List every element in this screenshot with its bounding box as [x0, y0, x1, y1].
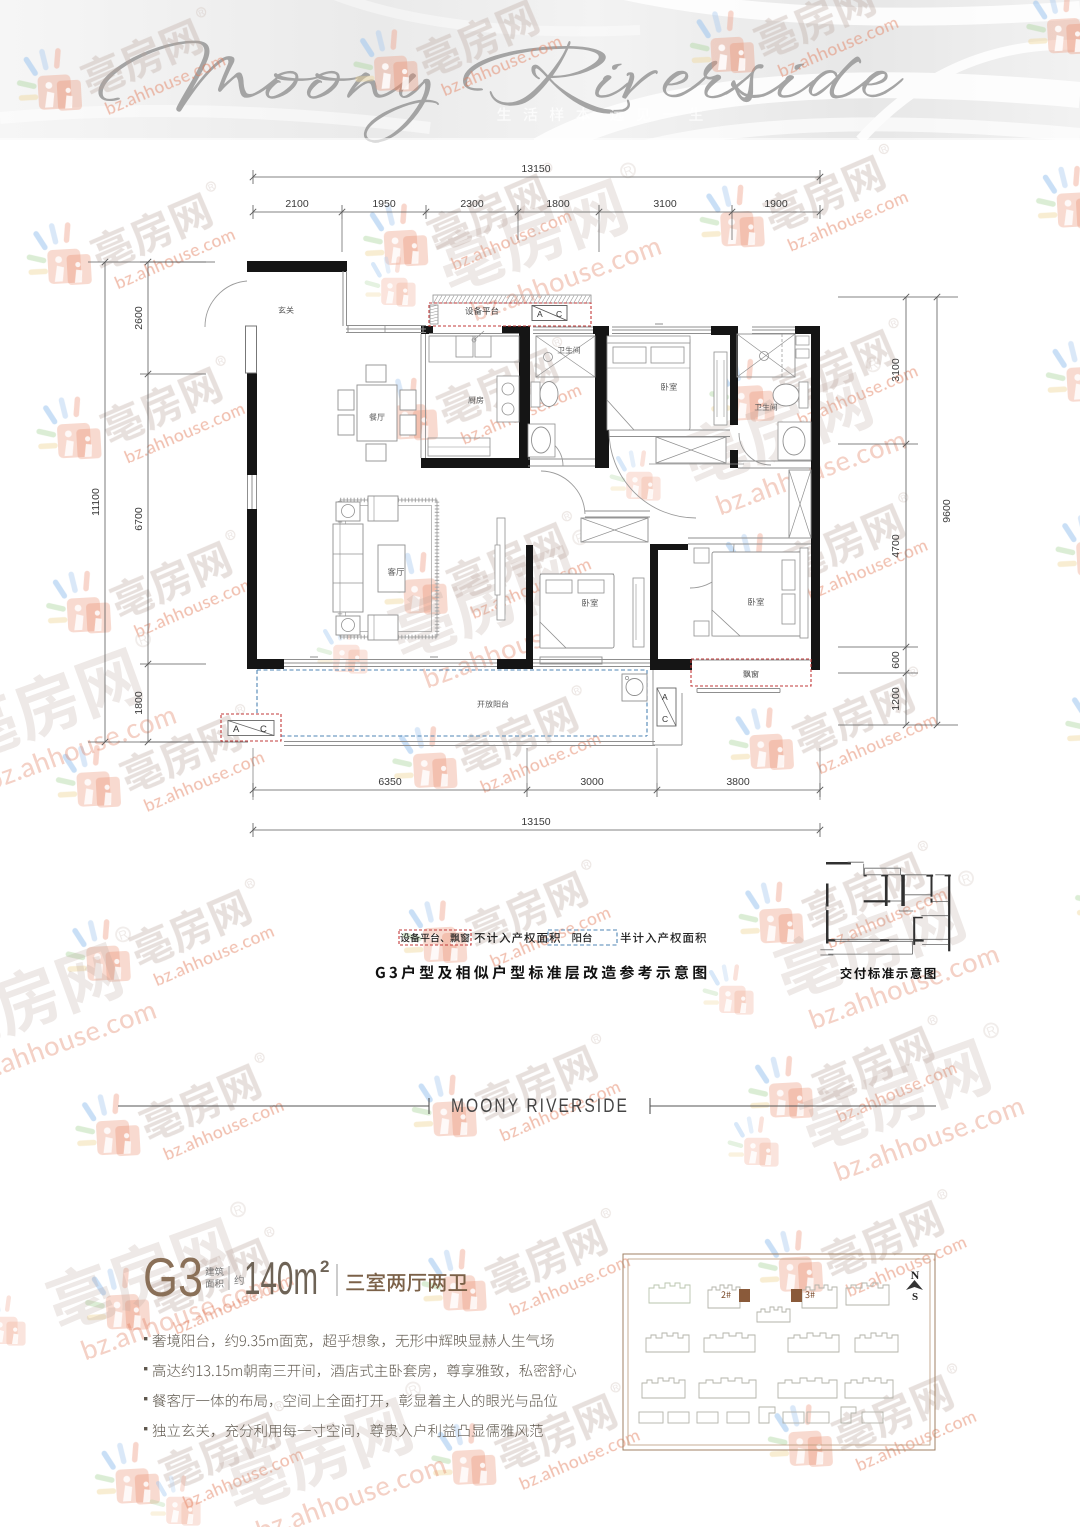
svg-text:1950: 1950 [372, 198, 396, 210]
svg-text:3100: 3100 [653, 198, 677, 210]
svg-text:S: S [912, 1291, 918, 1303]
svg-text:6350: 6350 [378, 776, 402, 788]
svg-text:C: C [260, 724, 267, 735]
svg-text:G3: G3 [143, 1246, 203, 1308]
svg-text:C: C [662, 714, 668, 724]
svg-text:2100: 2100 [285, 198, 309, 210]
svg-text:2: 2 [320, 1257, 329, 1276]
svg-text:3800: 3800 [726, 776, 750, 788]
svg-text:1800: 1800 [133, 691, 145, 715]
svg-text:1900: 1900 [764, 198, 788, 210]
svg-text:2600: 2600 [133, 306, 145, 330]
svg-text:4700: 4700 [890, 534, 902, 558]
svg-text:C: C [556, 309, 562, 319]
svg-text:A: A [233, 724, 240, 735]
svg-text:13150: 13150 [521, 163, 550, 175]
svg-text:13150: 13150 [521, 816, 550, 828]
svg-text:A: A [537, 309, 543, 319]
svg-text:600: 600 [890, 651, 902, 669]
svg-text:1200: 1200 [890, 687, 902, 711]
svg-text:3100: 3100 [890, 358, 902, 382]
svg-text:2300: 2300 [460, 198, 484, 210]
svg-text:11100: 11100 [90, 488, 102, 516]
svg-text:N: N [911, 1268, 920, 1282]
svg-text:MOONY RIVERSIDE: MOONY RIVERSIDE [451, 1095, 629, 1117]
svg-text:3000: 3000 [580, 776, 604, 788]
svg-text:1800: 1800 [546, 198, 570, 210]
svg-text:A: A [662, 692, 668, 702]
svg-text:6700: 6700 [133, 507, 145, 531]
svg-text:9600: 9600 [941, 499, 953, 523]
svg-text:140m: 140m [244, 1252, 318, 1304]
